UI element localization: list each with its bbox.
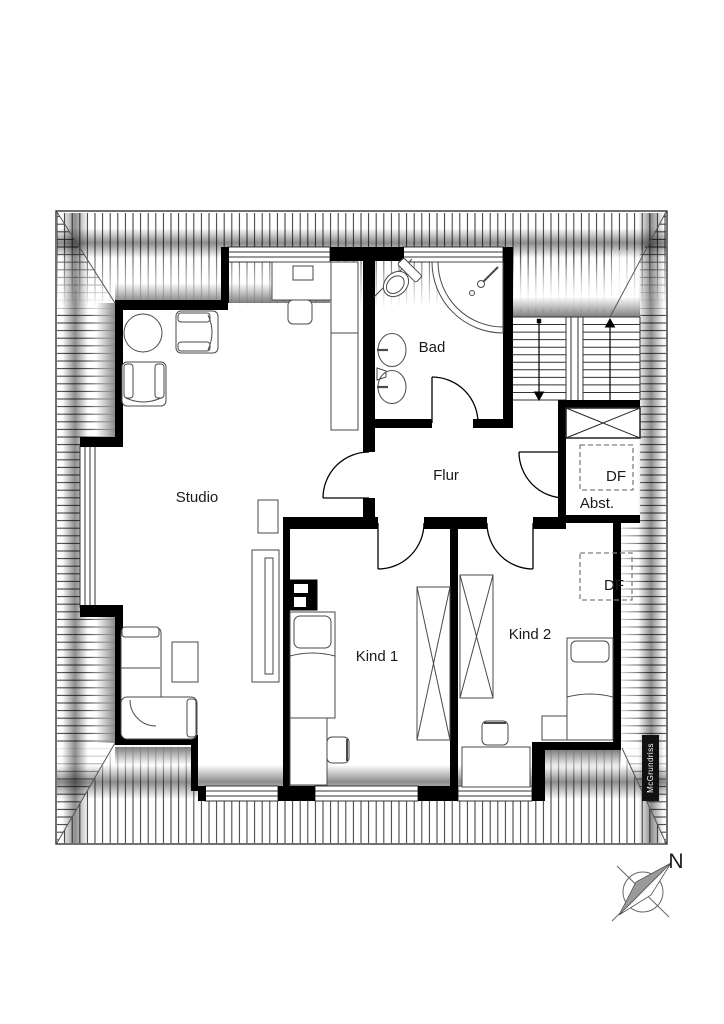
- room-label-abstell: Abst.: [580, 495, 614, 512]
- desk-chair-icon: [288, 300, 312, 324]
- corner-shower-icon: [432, 262, 503, 333]
- armchair-icon: [176, 311, 218, 353]
- room-label-bad: Bad: [419, 339, 446, 356]
- stair-direction-arrows: [535, 319, 615, 400]
- kind1-furniture: [290, 580, 349, 785]
- watermark: McGrundriss: [642, 735, 659, 801]
- desk-icon: [272, 262, 358, 430]
- bed-icon: [290, 612, 335, 718]
- floorplan-page: Studio Bad Flur Kind 1 Kind 2 Abst. DF D…: [0, 0, 724, 1024]
- wardrobe-kind2: [460, 575, 493, 698]
- desk-icon: [462, 721, 530, 787]
- room-label-kind2: Kind 2: [509, 626, 552, 643]
- roof-window-label-df2: DF: [604, 577, 624, 594]
- window-bottom-studio: [205, 786, 278, 801]
- window-top-bad: [403, 247, 503, 262]
- room-label-kind1: Kind 1: [356, 648, 399, 665]
- nightstand-icon: [542, 716, 567, 740]
- armchair-icon: [122, 362, 166, 406]
- door-kind1: [378, 523, 424, 569]
- room-label-flur: Flur: [433, 467, 459, 484]
- bathroom-fixtures: [374, 258, 503, 404]
- watermark-text: McGrundriss: [646, 743, 655, 793]
- round-table-icon: [124, 314, 162, 352]
- bed-icon: [567, 638, 613, 740]
- shaft-box: [566, 408, 640, 438]
- window-bottom-kind2: [458, 786, 532, 801]
- window-top-studio: [228, 247, 330, 262]
- north-label: N: [668, 850, 683, 873]
- room-label-studio: Studio: [176, 489, 219, 506]
- door-studio: [323, 452, 369, 498]
- shelf-icon: [252, 500, 279, 682]
- door-bad: [432, 377, 478, 423]
- door-kind2: [487, 523, 533, 569]
- double-sink-icon: [377, 334, 406, 404]
- desk-chair-icon: [327, 737, 349, 763]
- window-bottom-kind1: [315, 786, 418, 801]
- desk-chair-icon: [482, 721, 508, 745]
- wardrobe-kind1: [417, 587, 450, 740]
- roof-window-label-df1: DF: [606, 468, 626, 485]
- window-left-studio: [80, 445, 95, 607]
- media-unit-icon: [290, 580, 317, 610]
- floorplan-drawing: Studio Bad Flur Kind 1 Kind 2 Abst. DF D…: [0, 0, 724, 1024]
- side-table-icon: [172, 642, 198, 682]
- compass-icon: N: [612, 850, 684, 921]
